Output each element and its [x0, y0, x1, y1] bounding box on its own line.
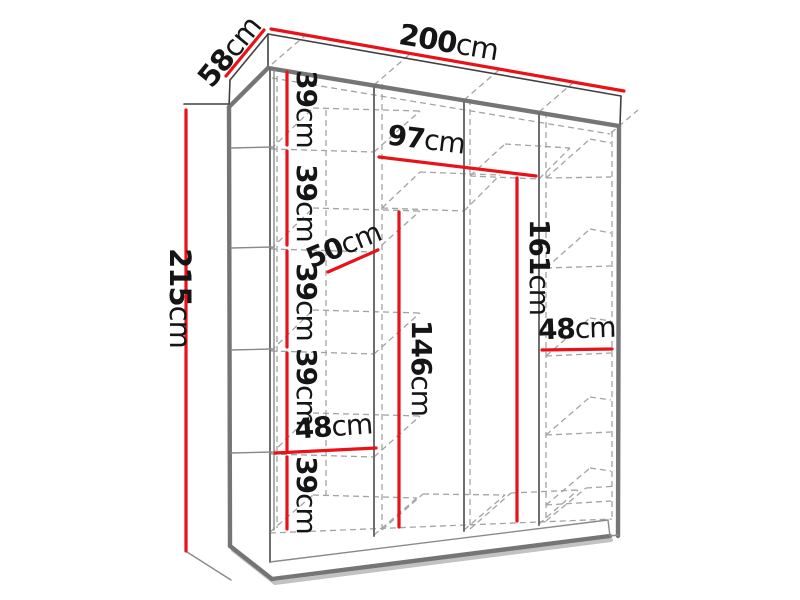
shelf-spacing-label-1: 39cm	[290, 70, 323, 148]
right-hanging-height-label: 161cm	[523, 219, 556, 315]
height-dimension-label: 215cm	[163, 248, 197, 348]
right-column-width-label: 48cm	[537, 311, 616, 347]
shelf-spacing-label-5: 39cm	[290, 456, 323, 534]
dimension-lines	[186, 29, 624, 551]
left-hanging-height-label: 146cm	[405, 320, 438, 416]
middle-inner-width-label: 97cm	[386, 118, 467, 160]
wardrobe-dimension-diagram: 200cm 58cm 215cm 39cm 39cm 39cm 39cm 39c…	[0, 0, 800, 600]
shelf-spacing-label-2: 39cm	[290, 164, 323, 242]
diagram-canvas: 200cm 58cm 215cm 39cm 39cm 39cm 39cm 39c…	[0, 0, 800, 600]
hidden-interior-lines	[270, 33, 638, 535]
left-column-width-label: 48cm	[293, 407, 373, 445]
shelf-spacing-label-3: 39cm	[290, 263, 323, 341]
